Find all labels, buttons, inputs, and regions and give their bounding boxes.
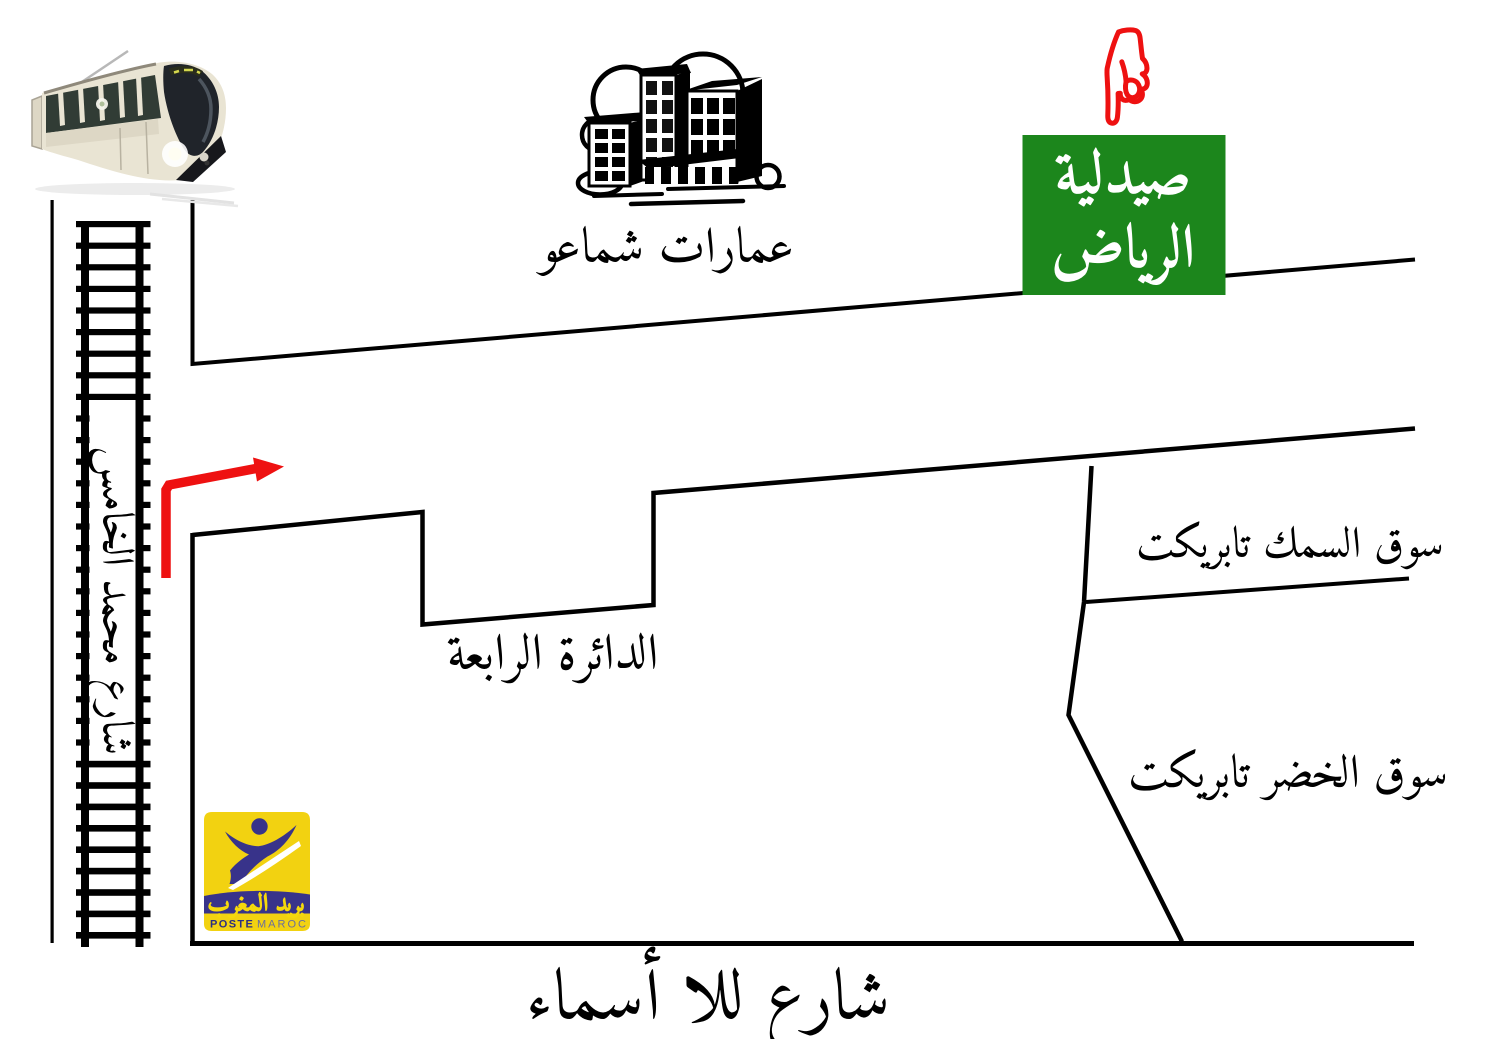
svg-text:MAROC: MAROC <box>257 919 308 931</box>
svg-text:POSTE: POSTE <box>210 919 254 931</box>
